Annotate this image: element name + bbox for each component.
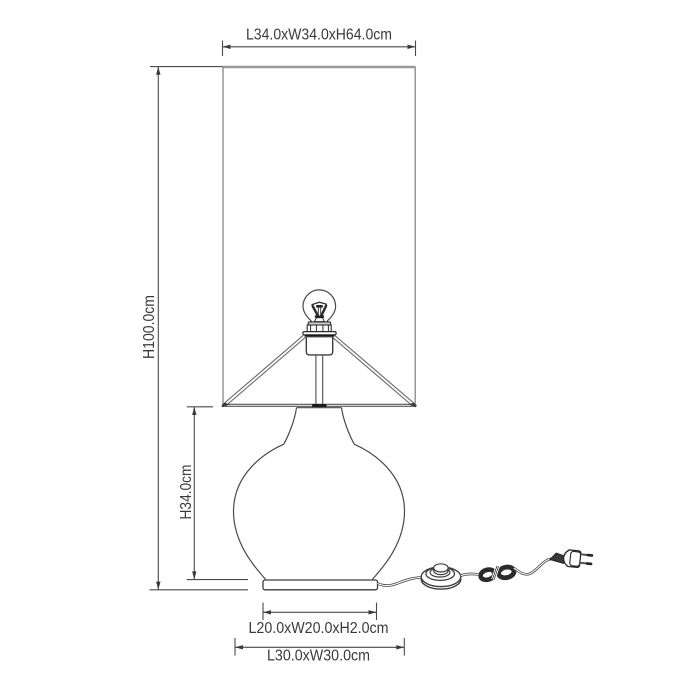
svg-text:H100.0cm: H100.0cm [141, 295, 158, 359]
svg-text:L34.0xW34.0xH64.0cm: L34.0xW34.0xH64.0cm [246, 27, 392, 44]
svg-text:L30.0xW30.0cm: L30.0xW30.0cm [267, 648, 370, 665]
svg-text:H34.0cm: H34.0cm [178, 465, 195, 520]
svg-text:L20.0xW20.0xH2.0cm: L20.0xW20.0xH2.0cm [249, 620, 389, 637]
